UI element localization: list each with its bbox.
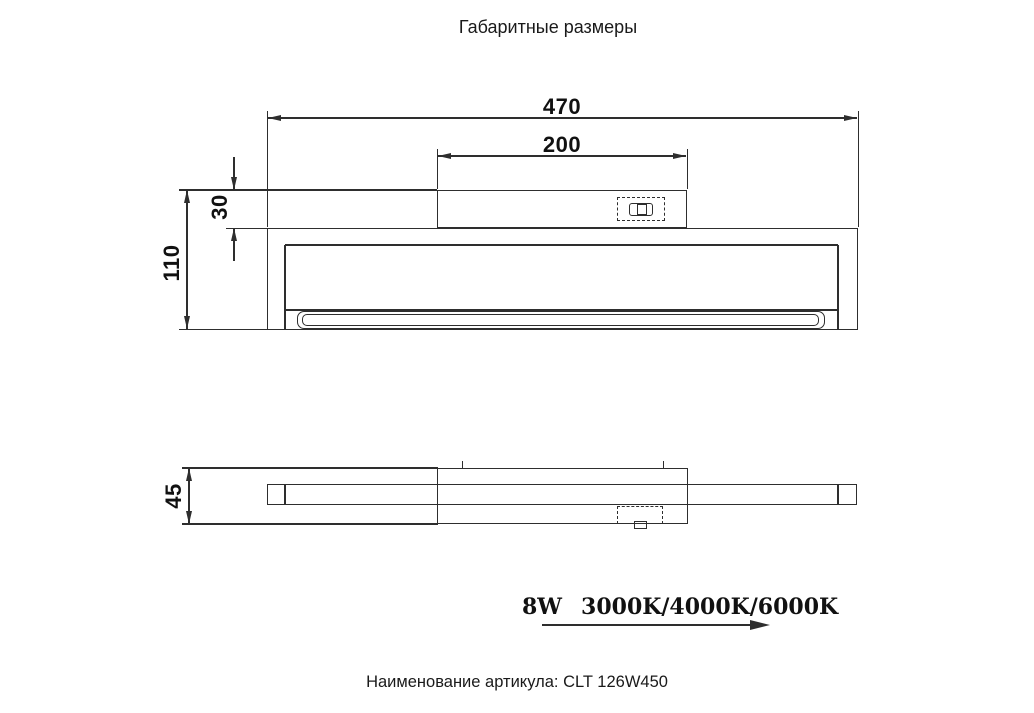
color-temperature-label: 3000K/4000K/6000K	[581, 594, 838, 620]
article-name: Наименование артикула: CLT 126W450	[366, 673, 668, 692]
wattage-label: 8W	[522, 594, 562, 620]
direction-arrow-line	[542, 624, 754, 626]
dimension-drawing-page: Габаритные размеры 470 200 110 30	[0, 0, 1034, 713]
right-arrow-icon	[750, 620, 770, 630]
spec-line: 8W 3000K/4000K/6000K	[522, 594, 838, 620]
spec-section: 8W 3000K/4000K/6000K	[0, 0, 1034, 713]
